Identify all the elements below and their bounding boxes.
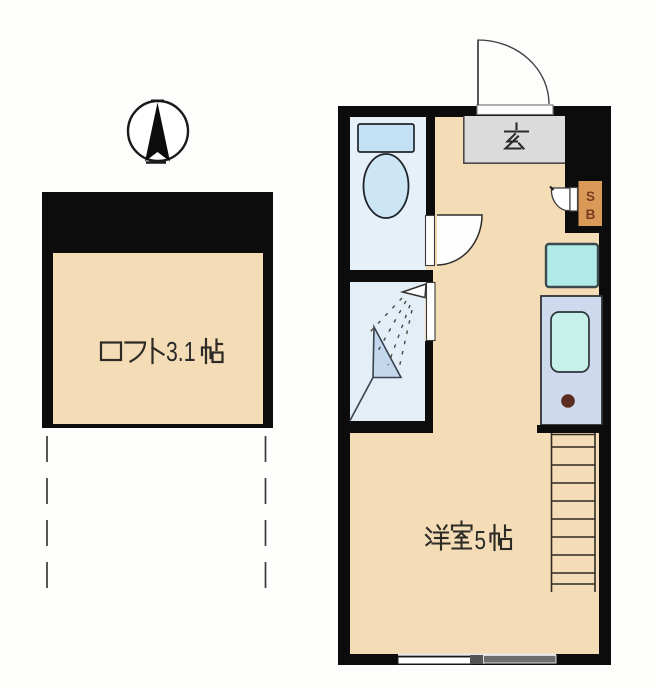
svg-text:3.1: 3.1	[166, 336, 196, 367]
svg-text:S: S	[586, 189, 595, 204]
svg-text:5: 5	[475, 525, 487, 555]
svg-text:B: B	[586, 207, 596, 222]
